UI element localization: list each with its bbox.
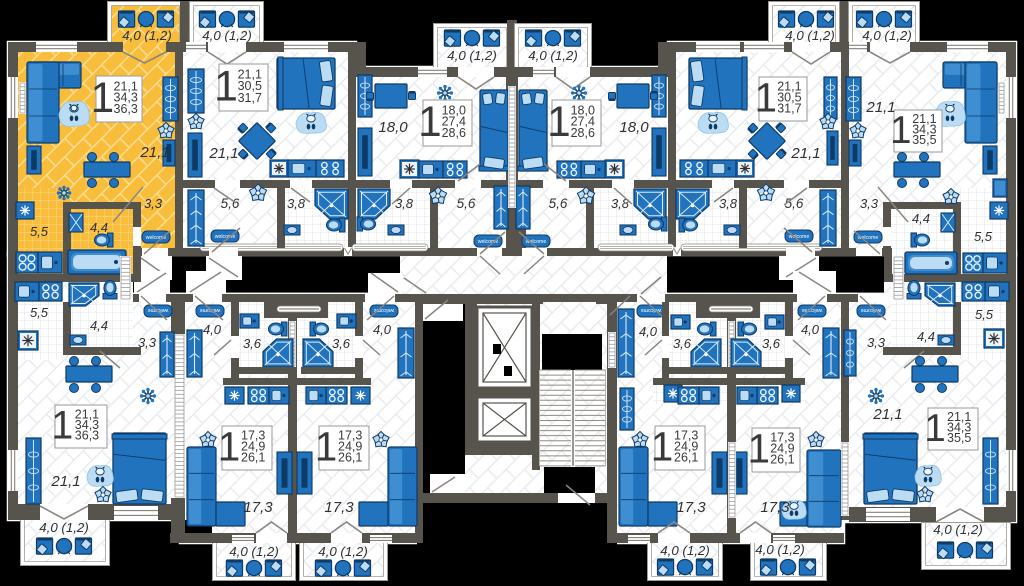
svg-text:3,8: 3,8	[719, 196, 738, 211]
svg-text:4,0 (1,2): 4,0 (1,2)	[229, 544, 279, 559]
svg-text:26,1: 26,1	[674, 450, 698, 464]
svg-text:1: 1	[218, 423, 241, 469]
svg-text:1: 1	[747, 425, 770, 471]
svg-text:3,3: 3,3	[144, 196, 163, 211]
svg-text:3,6: 3,6	[673, 336, 692, 351]
svg-text:4,0 (1,2): 4,0 (1,2)	[39, 520, 89, 535]
svg-text:1: 1	[754, 74, 777, 120]
svg-text:5,5: 5,5	[974, 229, 993, 244]
svg-text:4,4: 4,4	[90, 318, 108, 333]
svg-text:26,1: 26,1	[241, 450, 265, 464]
svg-text:17,3: 17,3	[676, 499, 706, 516]
svg-text:4,0 (1,2): 4,0 (1,2)	[933, 522, 983, 537]
svg-text:4,0: 4,0	[801, 322, 820, 337]
svg-text:5,6: 5,6	[457, 196, 476, 211]
svg-text:35,5: 35,5	[912, 133, 936, 147]
svg-text:31,7: 31,7	[777, 101, 801, 115]
svg-text:17,3: 17,3	[760, 499, 790, 516]
svg-text:21,1: 21,1	[790, 145, 820, 162]
svg-text:17,3: 17,3	[243, 499, 273, 516]
svg-text:4,0 (1,2): 4,0 (1,2)	[528, 48, 578, 63]
svg-text:4,0 (1,2): 4,0 (1,2)	[755, 542, 805, 557]
svg-text:3,3: 3,3	[138, 335, 157, 350]
svg-text:28,6: 28,6	[571, 126, 595, 140]
svg-text:36,3: 36,3	[114, 102, 138, 116]
svg-text:4,0 (1,2): 4,0 (1,2)	[318, 544, 368, 559]
svg-text:3,3: 3,3	[867, 335, 886, 350]
svg-text:21,1: 21,1	[872, 406, 902, 423]
svg-text:1: 1	[315, 423, 338, 469]
svg-text:1: 1	[651, 423, 674, 469]
svg-text:21,1: 21,1	[50, 473, 80, 490]
svg-text:4,4: 4,4	[917, 329, 935, 344]
svg-text:4,4: 4,4	[912, 211, 930, 226]
svg-text:5,5: 5,5	[30, 305, 49, 320]
svg-text:4,0 (1,2): 4,0 (1,2)	[202, 28, 252, 43]
svg-text:4,0: 4,0	[203, 322, 222, 337]
svg-text:1: 1	[924, 407, 945, 450]
svg-text:4,0 (1,2): 4,0 (1,2)	[862, 28, 912, 43]
svg-text:21,1: 21,1	[208, 145, 238, 162]
svg-text:4,0 (1,2): 4,0 (1,2)	[660, 543, 710, 558]
svg-text:31,7: 31,7	[238, 91, 262, 105]
svg-text:3,8: 3,8	[287, 196, 306, 211]
svg-text:5,5: 5,5	[975, 307, 994, 322]
svg-text:4,0 (1,2): 4,0 (1,2)	[447, 48, 497, 63]
svg-text:26,1: 26,1	[770, 452, 794, 466]
svg-text:3,8: 3,8	[611, 196, 630, 211]
svg-text:21,1: 21,1	[865, 99, 895, 116]
svg-text:1: 1	[91, 74, 115, 121]
svg-text:4,0: 4,0	[373, 322, 392, 337]
svg-text:28,6: 28,6	[442, 126, 466, 140]
svg-text:4,0 (1,2): 4,0 (1,2)	[122, 28, 172, 43]
svg-text:21,1: 21,1	[139, 144, 169, 161]
svg-text:3,3: 3,3	[860, 196, 879, 211]
svg-text:3,6: 3,6	[332, 336, 351, 351]
svg-text:1: 1	[214, 63, 238, 111]
svg-text:1: 1	[547, 98, 571, 145]
svg-text:1: 1	[51, 404, 73, 448]
svg-text:5,5: 5,5	[30, 224, 49, 239]
svg-text:18,0: 18,0	[619, 119, 649, 136]
svg-text:26,1: 26,1	[338, 450, 362, 464]
svg-text:4,0: 4,0	[639, 324, 658, 339]
svg-text:18,0: 18,0	[378, 119, 408, 136]
svg-text:3,6: 3,6	[243, 336, 262, 351]
svg-text:4,4: 4,4	[90, 220, 108, 235]
svg-text:36,3: 36,3	[75, 429, 99, 443]
svg-text:1: 1	[418, 98, 442, 145]
svg-text:35,5: 35,5	[947, 431, 971, 445]
svg-text:3,6: 3,6	[762, 336, 781, 351]
svg-text:4,0 (1,2): 4,0 (1,2)	[785, 28, 835, 43]
svg-text:5,6: 5,6	[549, 196, 568, 211]
svg-text:17,3: 17,3	[324, 499, 354, 516]
